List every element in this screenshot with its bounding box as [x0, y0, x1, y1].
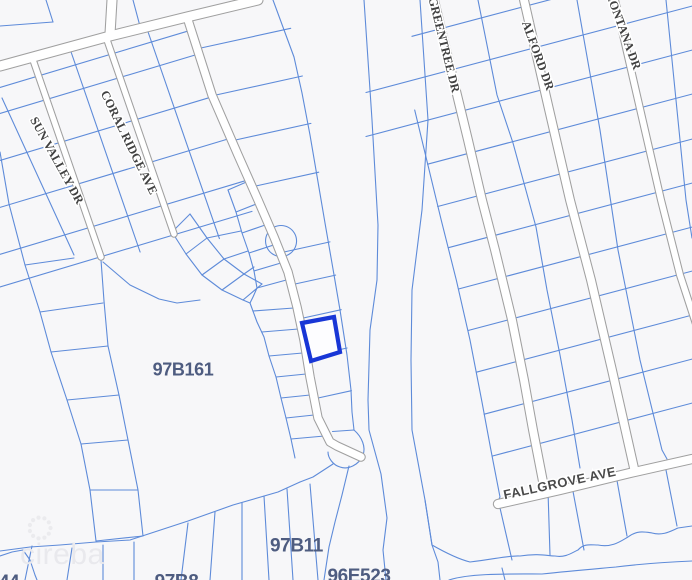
- svg-text:44: 44: [0, 572, 20, 580]
- svg-text:97B11: 97B11: [270, 536, 324, 557]
- svg-text:96E523: 96E523: [327, 566, 390, 580]
- svg-text:97B161: 97B161: [153, 360, 214, 380]
- svg-text:cireba: cireba: [20, 538, 105, 571]
- svg-text:97B8: 97B8: [155, 572, 199, 580]
